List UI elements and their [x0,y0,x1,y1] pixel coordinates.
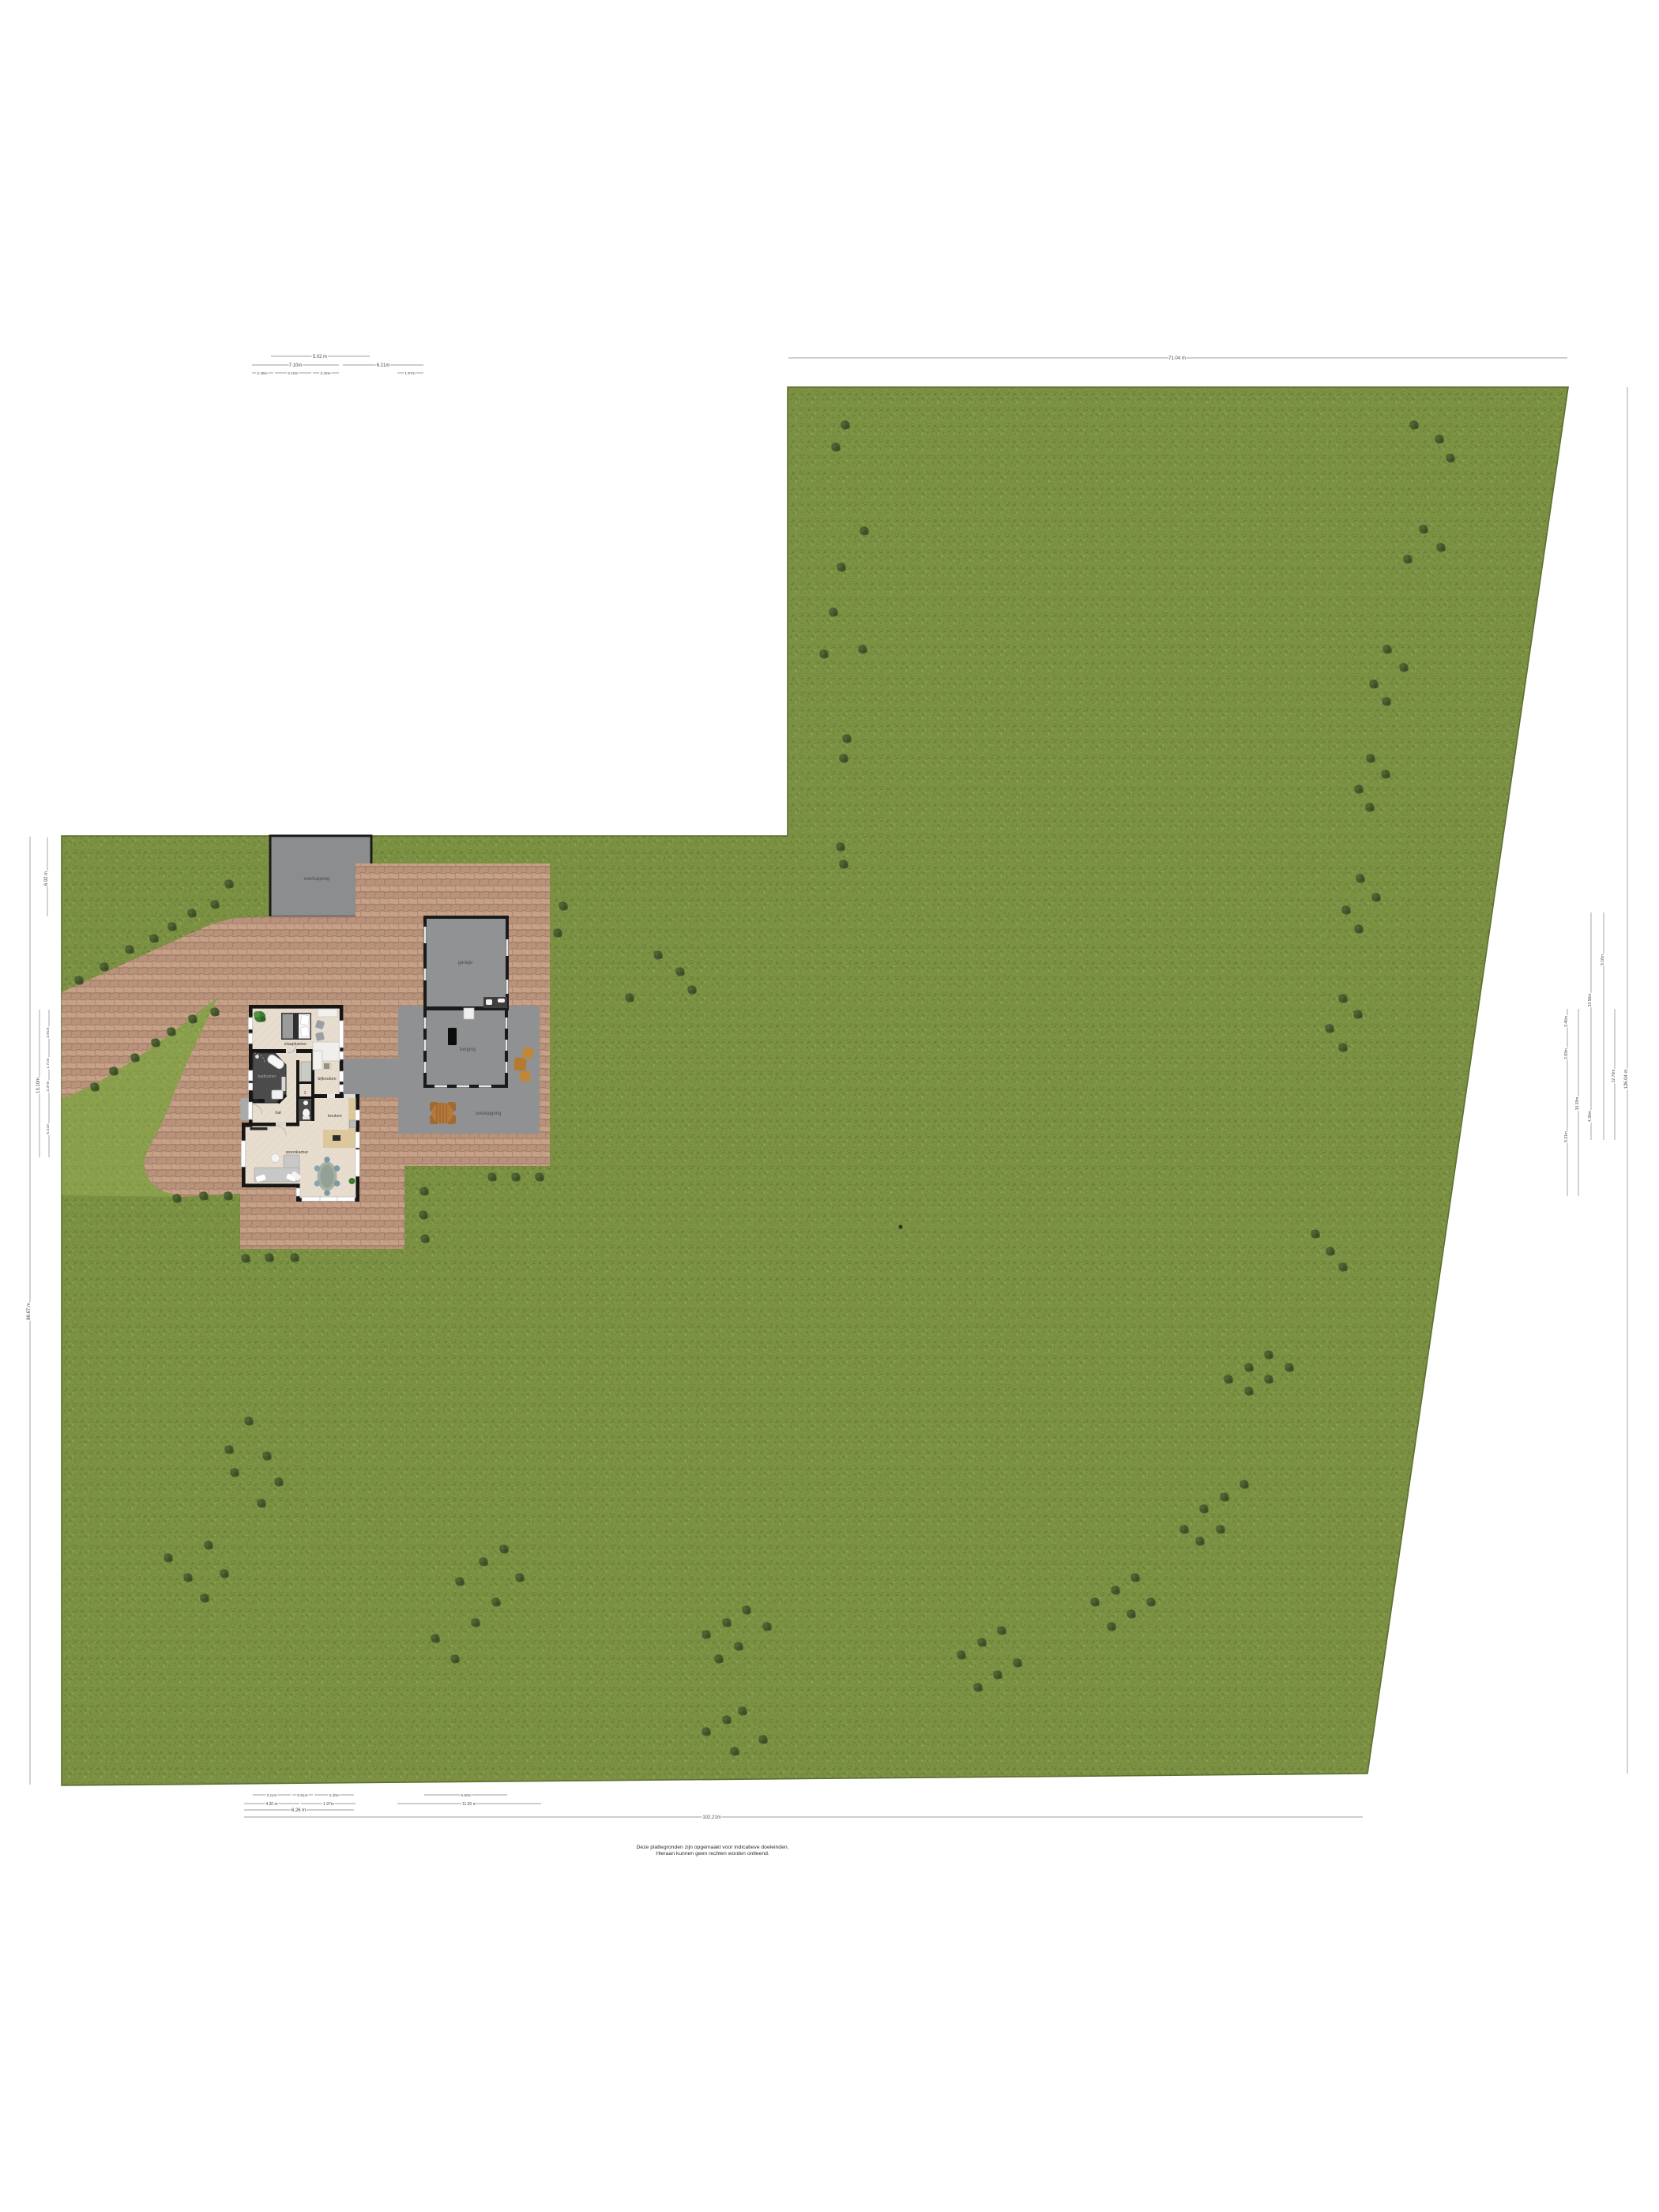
svg-text:3.91m: 3.91m [46,1027,51,1037]
svg-text:5.02 m: 5.02 m [313,355,327,359]
svg-text:badkamer: badkamer [258,1074,276,1079]
svg-text:9.21m: 9.21m [1564,1131,1569,1142]
svg-text:3.40m: 3.40m [329,1793,339,1798]
svg-text:0.51m: 0.51m [297,1793,307,1798]
svg-text:1.97m: 1.97m [323,1802,334,1807]
svg-text:hal: hal [275,1111,280,1115]
svg-text:13.56m: 13.56m [1588,994,1593,1007]
svg-text:126.04 m: 126.04 m [1624,1069,1629,1089]
svg-text:Hieraan kunnen geen rechten wo: Hieraan kunnen geen rechten worden ontle… [656,1851,769,1856]
svg-text:13.10m: 13.10m [36,1078,41,1093]
svg-text:9.16m: 9.16m [1601,954,1605,965]
svg-text:10.19m: 10.19m [1575,1097,1580,1111]
svg-text:1: 1 [304,1091,307,1096]
svg-text:5.41m: 5.41m [46,1123,51,1134]
svg-text:71.04 m: 71.04 m [1168,356,1186,361]
svg-text:bijkeuken: bijkeuken [318,1077,336,1082]
svg-text:4.30 m: 4.30 m [265,1802,277,1807]
svg-text:3.11m: 3.11m [267,1793,277,1798]
svg-text:2.37m: 2.37m [46,1081,51,1091]
svg-text:6.21m: 6.21m [377,363,390,368]
svg-text:garage: garage [458,961,473,965]
svg-text:1.97m: 1.97m [404,371,415,376]
svg-text:slaapkamer: slaapkamer [284,1042,307,1047]
svg-text:keuken: keuken [328,1114,342,1119]
svg-text:2.83m: 2.83m [1564,1048,1569,1059]
svg-text:102.21m: 102.21m [702,1815,720,1820]
svg-text:3.46m: 3.46m [1564,1016,1569,1027]
svg-text:berging: berging [460,1048,476,1052]
svg-text:86.67 m: 86.67 m [27,1303,32,1320]
svg-text:1.71m: 1.71m [46,1058,51,1068]
svg-text:4.36m: 4.36m [1588,1111,1593,1122]
svg-text:overkapping: overkapping [304,877,330,882]
svg-text:2.42m: 2.42m [320,371,330,376]
svg-text:2.49m: 2.49m [257,371,267,376]
svg-text:12.70m: 12.70m [1612,1070,1616,1083]
svg-text:6.26 m: 6.26 m [292,1808,306,1813]
svg-text:7.10m: 7.10m [289,363,303,368]
svg-text:2.10m: 2.10m [288,371,298,376]
svg-text:6.92 m: 6.92 m [44,871,49,886]
svg-text:6.50m: 6.50m [461,1793,471,1798]
svg-text:11.60 m: 11.60 m [462,1802,476,1807]
svg-text:Deze plattegronden zijn opgema: Deze plattegronden zijn opgemaakt voor i… [636,1845,788,1850]
svg-text:woonkamer: woonkamer [285,1150,309,1155]
svg-text:overkapping: overkapping [476,1112,502,1116]
